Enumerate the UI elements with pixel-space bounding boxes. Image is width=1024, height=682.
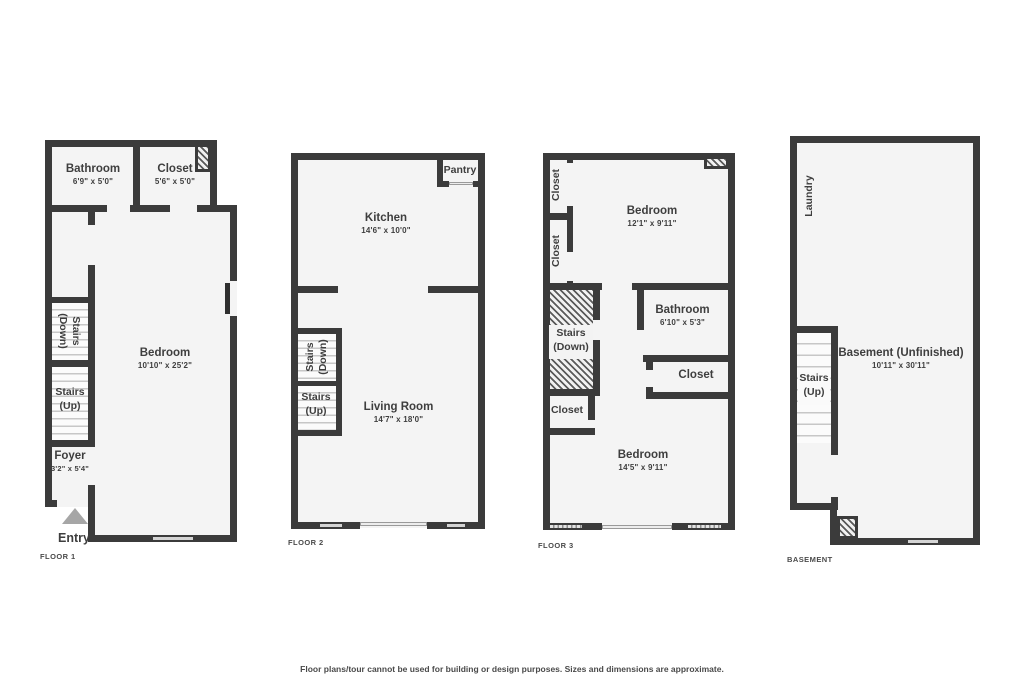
wall — [588, 396, 595, 420]
floor3-stairs-down-label: Stairs (Down) — [545, 327, 597, 354]
floor1-stairs-up-label: Stairs (Up) — [47, 386, 93, 413]
wall — [45, 360, 95, 367]
wall — [428, 286, 485, 293]
wall — [88, 205, 95, 225]
wall — [543, 428, 595, 435]
window — [908, 538, 938, 545]
basement-room-label: Basement (Unfinished) 10'11" x 30'11" — [826, 346, 976, 371]
wall — [130, 205, 170, 212]
floor2-living-room-label: Living Room 14'7" x 18'0" — [336, 400, 461, 425]
floorplan-sheet: Bathroom 6'9" x 5'0" Closet 5'6" x 5'0" … — [0, 0, 1024, 682]
wall — [672, 523, 688, 530]
wide-window-opening — [360, 522, 427, 526]
floor3-bedroom-top-label: Bedroom 12'1" x 9'11" — [592, 204, 712, 229]
wall — [473, 181, 485, 187]
disclaimer-text: Floor plans/tour cannot be used for buil… — [0, 664, 1024, 674]
floor3-closet-top-label: Closet — [551, 163, 563, 207]
wall — [291, 430, 342, 436]
wall — [938, 538, 973, 545]
wide-window-opening — [602, 525, 672, 529]
floor2-stairs-down-label: Stairs(Down) — [303, 328, 331, 386]
wall — [478, 153, 485, 529]
window — [153, 535, 193, 542]
window — [447, 522, 465, 529]
floor3-caption: FLOOR 3 — [538, 541, 574, 550]
window — [320, 522, 342, 529]
floor2-pantry-label: Pantry — [441, 164, 479, 178]
pantry-door-opening — [449, 182, 473, 185]
wall — [973, 136, 980, 545]
wall — [465, 522, 485, 529]
window — [688, 523, 721, 530]
wall — [193, 535, 237, 542]
wall — [543, 213, 573, 220]
wall — [643, 355, 735, 362]
wall — [45, 205, 107, 212]
wall — [567, 153, 573, 163]
wall — [646, 392, 735, 399]
wall — [291, 522, 320, 529]
chimney-hatch — [704, 156, 729, 169]
wall — [790, 136, 980, 143]
wall — [291, 153, 298, 529]
chimney-hatch — [837, 516, 858, 539]
wall — [721, 523, 735, 530]
floor3-closet-mid-label: Closet — [551, 229, 563, 273]
entry-arrow-icon — [62, 508, 88, 524]
floor2-kitchen-label: Kitchen 14'6" x 10'0" — [330, 211, 442, 236]
floor1-caption: FLOOR 1 — [40, 552, 76, 561]
basement-caption: BASEMENT — [787, 555, 833, 564]
wall — [830, 538, 908, 545]
wall — [45, 440, 95, 447]
floor3-closet-right-label: Closet — [660, 368, 732, 383]
wall — [728, 153, 735, 530]
floor3-bathroom-label: Bathroom 6'10" x 5'3" — [630, 303, 735, 328]
wall — [646, 362, 653, 370]
wall — [790, 136, 797, 510]
wall — [291, 153, 485, 160]
wall — [45, 140, 217, 147]
wall — [88, 265, 95, 447]
wall — [45, 500, 57, 507]
floor1-bedroom-floor — [88, 205, 237, 542]
wall — [230, 205, 237, 281]
basement-laundry-label: Laundry — [804, 166, 816, 226]
basement-floor — [795, 142, 975, 507]
wall — [582, 523, 602, 530]
floor1-stairs-down-label: Stairs(Down) — [55, 302, 83, 360]
wall — [291, 286, 338, 293]
basement-stairs-up-label: Stairs (Up) — [791, 372, 837, 399]
floor1-entry-label: Entry — [48, 531, 100, 545]
floor1-foyer-label: Foyer 3'2" x 5'4" — [44, 449, 96, 474]
floor3-bedroom-bottom-label: Bedroom 14'5" x 9'11" — [583, 448, 703, 473]
sliding-door — [225, 283, 230, 314]
wall — [632, 283, 735, 290]
floor1-closet-label: Closet 5'6" x 5'0" — [138, 162, 212, 187]
floor2-stairs-up-label: Stairs (Up) — [294, 391, 338, 418]
wall — [543, 389, 600, 396]
window — [550, 523, 582, 530]
floor3-closet-left-label: Closet — [545, 404, 589, 418]
floor1-bathroom-label: Bathroom 6'9" x 5'0" — [52, 162, 134, 187]
floor2-caption: FLOOR 2 — [288, 538, 324, 547]
wall — [593, 283, 600, 320]
wall — [342, 522, 360, 529]
floor1-bedroom-label: Bedroom 10'10" x 25'2" — [95, 346, 235, 371]
wall — [437, 181, 449, 187]
wall — [427, 522, 447, 529]
wall — [831, 497, 838, 510]
